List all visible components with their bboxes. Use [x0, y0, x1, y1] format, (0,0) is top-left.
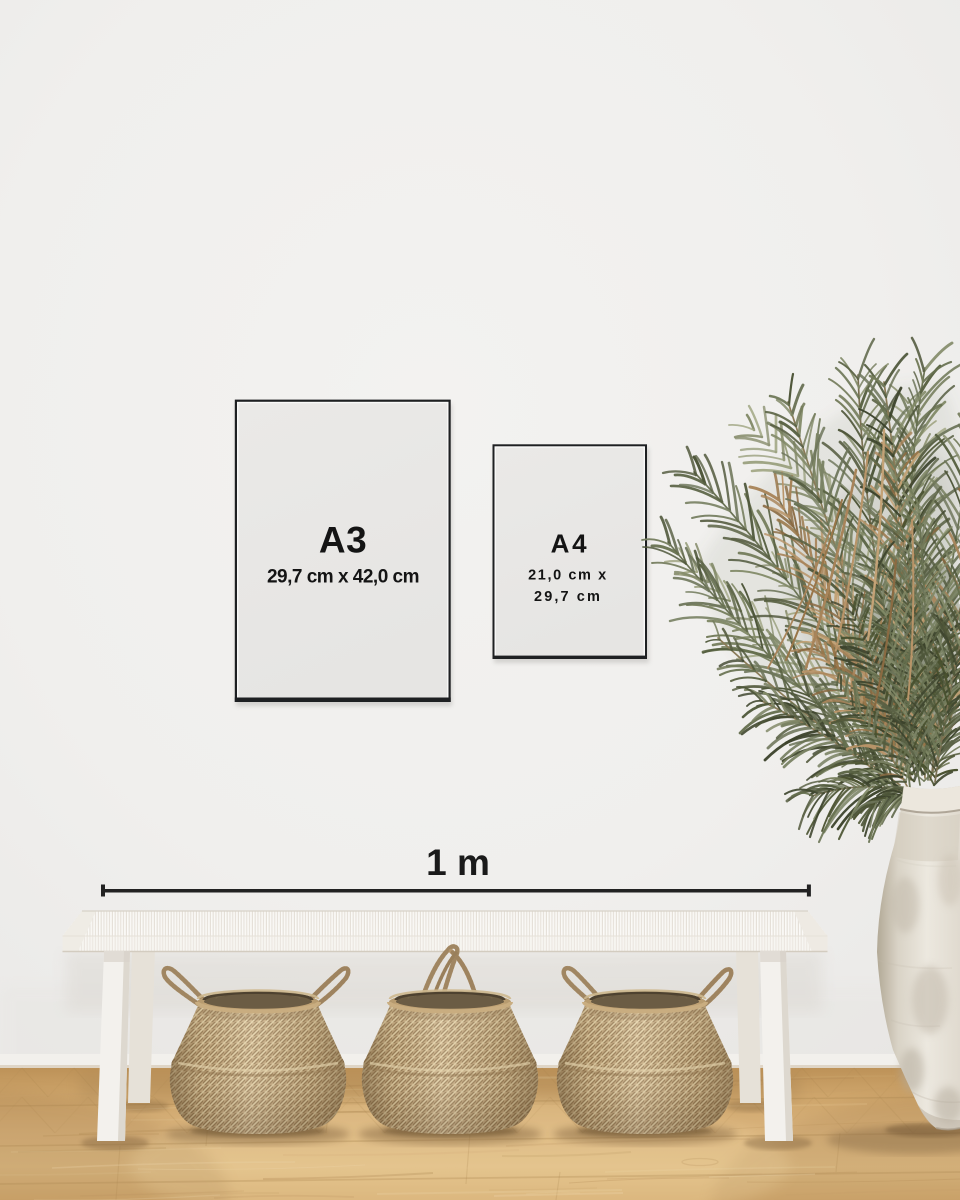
- svg-text:1 m: 1 m: [426, 842, 490, 883]
- svg-text:A4: A4: [551, 528, 590, 558]
- svg-text:29,7 cm: 29,7 cm: [534, 589, 602, 605]
- svg-text:29,7 cm x 42,0 cm: 29,7 cm x 42,0 cm: [267, 567, 419, 588]
- svg-text:21,0 cm x: 21,0 cm x: [528, 568, 608, 584]
- svg-text:A3: A3: [319, 520, 367, 561]
